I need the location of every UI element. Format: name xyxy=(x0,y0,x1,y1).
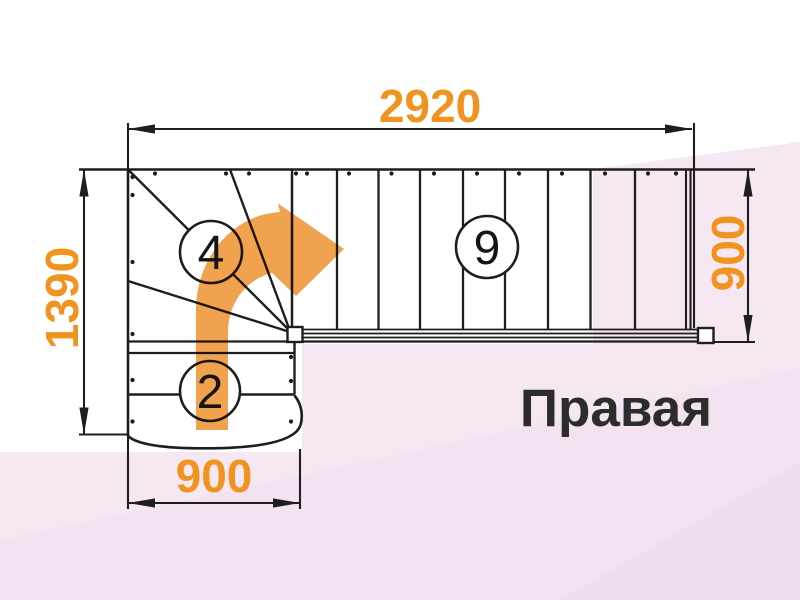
dim-flight-width-label: 900 xyxy=(702,215,754,292)
dim-total-depth-label: 1390 xyxy=(36,247,88,349)
staircase-plan-diagram: 4 2 9 2920 1390 900 900 Правая xyxy=(0,0,800,600)
page-title: Правая xyxy=(520,379,712,438)
dim-lower-width-label: 900 xyxy=(176,450,253,502)
lower-step-count: 2 xyxy=(197,366,224,419)
newel-post-left xyxy=(288,327,303,342)
newel-post-right xyxy=(698,328,714,343)
staircase-plan-page: 4 2 9 2920 1390 900 900 Правая xyxy=(0,0,800,600)
upper-step-count: 9 xyxy=(474,222,501,275)
winder-step-count: 4 xyxy=(198,227,225,280)
dim-total-length-label: 2920 xyxy=(379,80,481,132)
